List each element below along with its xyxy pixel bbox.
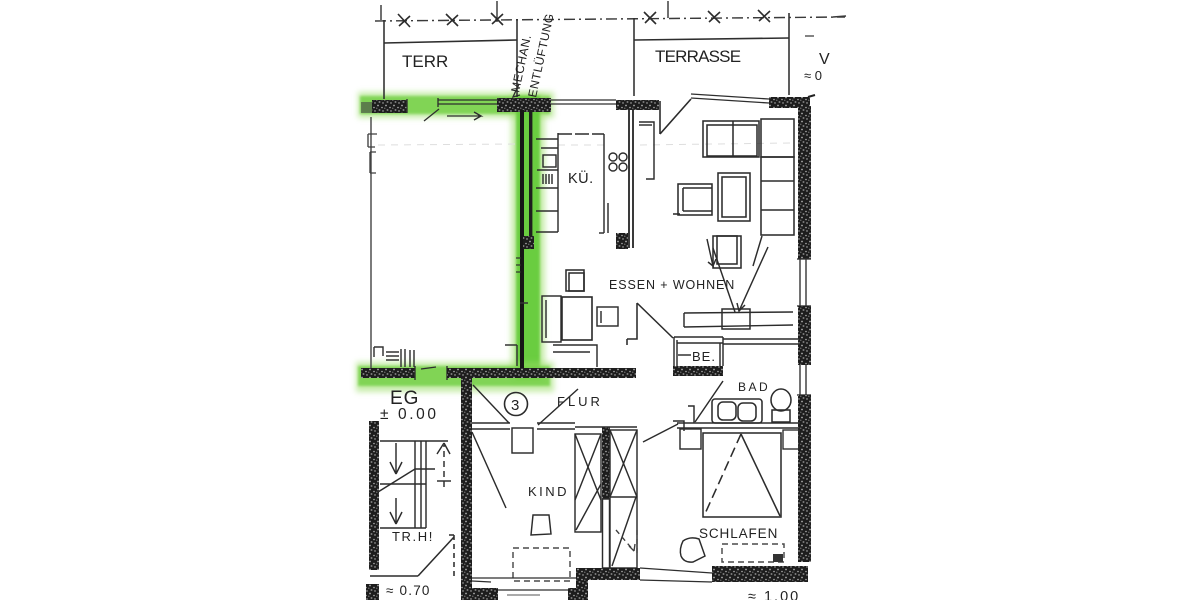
svg-text:KÜ.: KÜ.	[568, 169, 594, 187]
svg-text:≈ 1.00: ≈ 1.00	[748, 589, 800, 600]
svg-text:TR.H!: TR.H!	[392, 529, 434, 544]
svg-text:TERR: TERR	[402, 52, 448, 71]
svg-text:TERRASSE: TERRASSE	[655, 47, 741, 66]
svg-text:BE.: BE.	[692, 349, 716, 364]
svg-text:≈ 0: ≈ 0	[804, 68, 822, 83]
svg-text:KIND: KIND	[528, 484, 569, 499]
svg-text:ESSEN + WOHNEN: ESSEN + WOHNEN	[609, 278, 735, 292]
svg-text:BAD: BAD	[738, 380, 770, 394]
svg-text:≈ 0.70: ≈ 0.70	[386, 583, 431, 598]
svg-text:± 0.00: ± 0.00	[380, 406, 439, 423]
svg-text:3: 3	[511, 397, 519, 414]
svg-text:SCHLAFEN: SCHLAFEN	[699, 526, 778, 541]
svg-text:V: V	[819, 51, 830, 68]
